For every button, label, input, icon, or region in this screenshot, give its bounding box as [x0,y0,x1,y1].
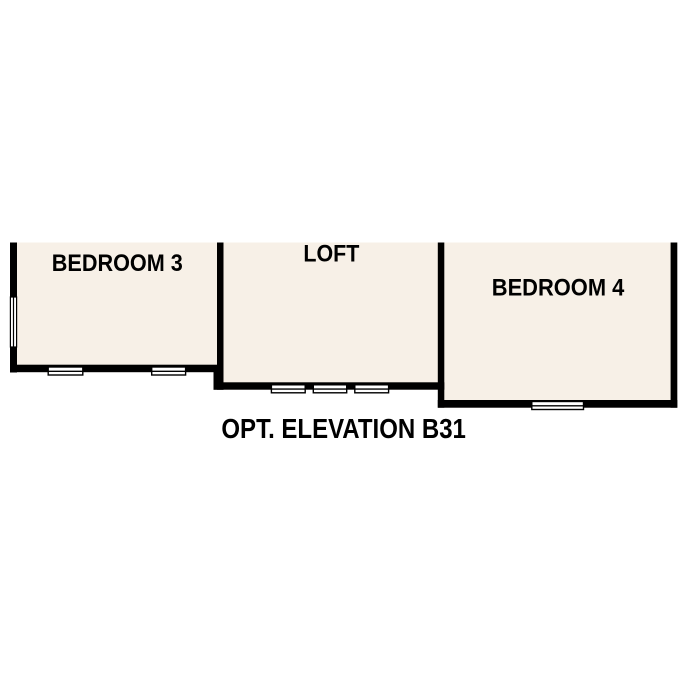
svg-text:BEDROOM 4: BEDROOM 4 [492,275,625,301]
svg-text:LOFT: LOFT [303,242,359,268]
svg-text:OPT. ELEVATION B31: OPT. ELEVATION B31 [221,413,466,444]
svg-text:BEDROOM 3: BEDROOM 3 [52,251,183,277]
